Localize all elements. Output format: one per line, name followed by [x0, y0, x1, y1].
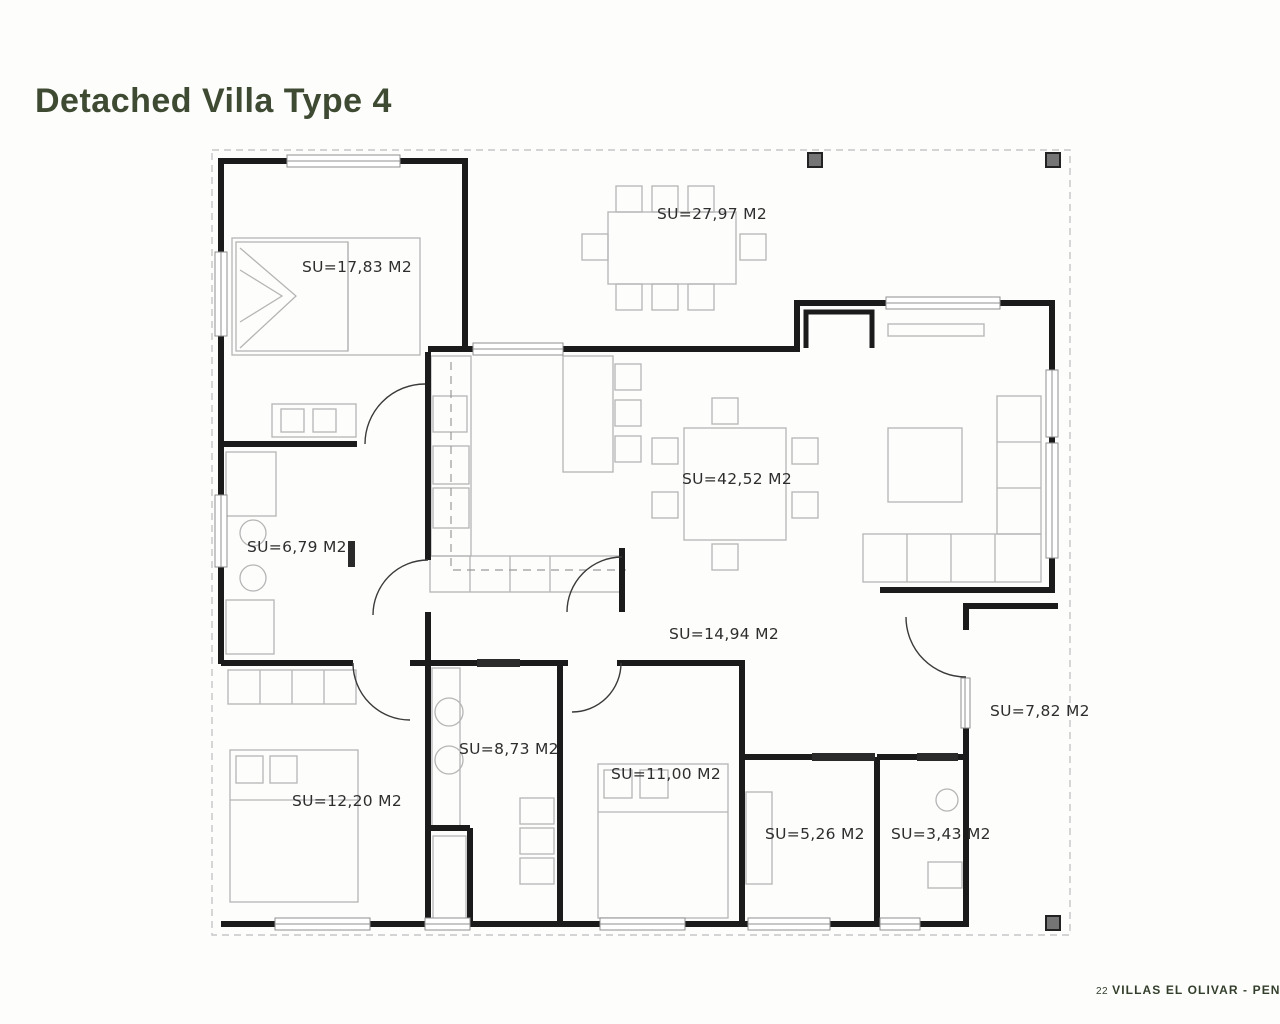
- pillars: [808, 153, 1060, 930]
- sliding-door: [917, 753, 958, 761]
- room-label-bedroom-2: SU=12,20 M2: [292, 792, 402, 810]
- room-label-porch: SU=7,82 M2: [990, 702, 1090, 720]
- footer: 22VILLAS EL OLIVAR - PENAGUIL: [1096, 983, 1280, 997]
- doors-layer: [348, 384, 966, 761]
- sliding-door: [812, 753, 875, 761]
- footer-project-name: VILLAS EL OLIVAR - PENAGUIL: [1112, 983, 1280, 997]
- radiator: [348, 541, 355, 567]
- floorplan-drawing: SU=17,83 M2 SU=27,97 M2 SU=42,52 M2 SU=6…: [0, 0, 1280, 1024]
- room-label-bedroom-main: SU=17,83 M2: [302, 258, 412, 276]
- room-label-terrace-dining: SU=27,97 M2: [657, 205, 767, 223]
- room-label-bathroom-family: SU=8,73 M2: [459, 740, 559, 758]
- pillar-icon: [1046, 153, 1060, 167]
- pillar-icon: [1046, 916, 1060, 930]
- room-label-living-kitchen: SU=42,52 M2: [682, 470, 792, 488]
- room-label-storage: SU=5,26 M2: [765, 825, 865, 843]
- room-label-bedroom-3: SU=11,00 M2: [611, 765, 721, 783]
- room-label-wc: SU=3,43 M2: [891, 825, 991, 843]
- sliding-door: [477, 659, 520, 667]
- footer-page-number: 22: [1096, 986, 1108, 997]
- room-label-hallway: SU=14,94 M2: [669, 625, 779, 643]
- pillar-icon: [808, 153, 822, 167]
- room-label-bathroom-ensuite: SU=6,79 M2: [247, 538, 347, 556]
